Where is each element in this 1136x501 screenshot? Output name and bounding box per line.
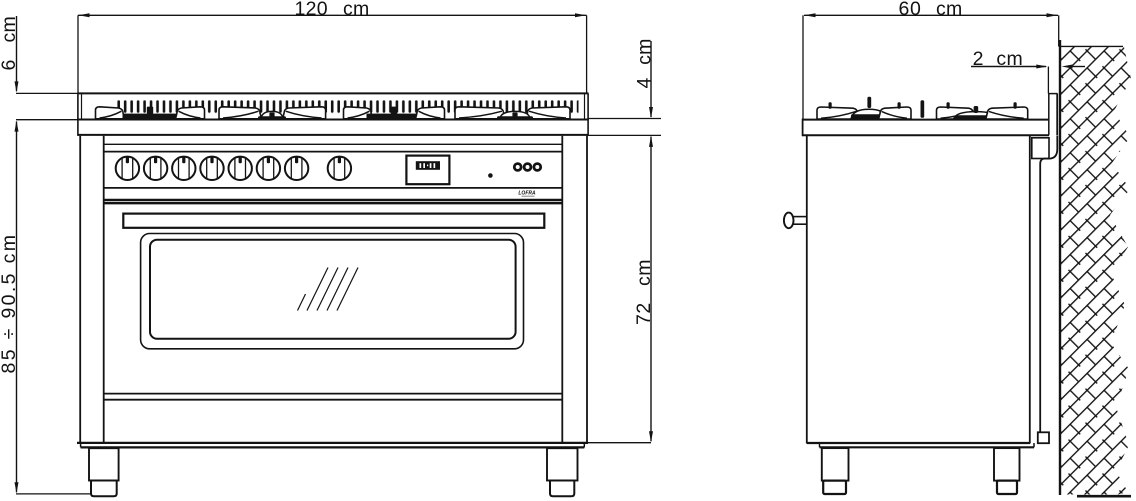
svg-text:60: 60	[899, 0, 922, 20]
svg-text:85 ÷ 90.5 cm: 85 ÷ 90.5 cm	[0, 233, 20, 374]
svg-text:4cm: 4cm	[633, 38, 655, 88]
svg-text:6cm: 6cm	[0, 16, 20, 71]
svg-text:120: 120	[295, 0, 328, 20]
svg-text:cm: cm	[343, 0, 370, 20]
svg-text:LOFRA: LOFRA	[518, 190, 536, 196]
svg-text:2: 2	[973, 48, 984, 70]
svg-text:cm: cm	[936, 0, 963, 20]
svg-text:cm: cm	[996, 48, 1023, 70]
